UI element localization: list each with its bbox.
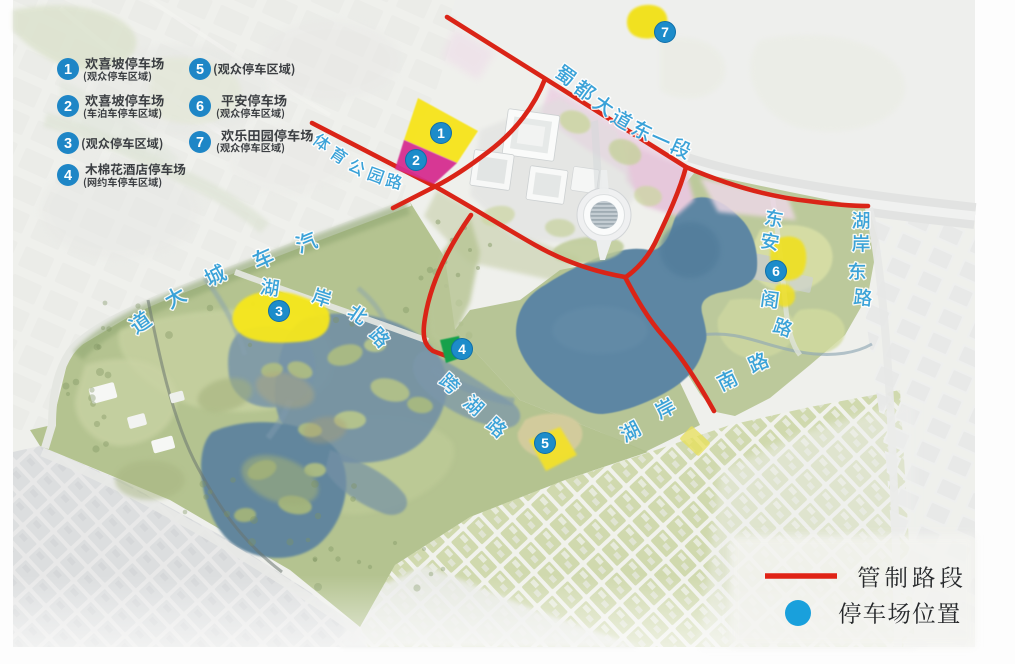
- svg-text:1: 1: [64, 62, 72, 78]
- svg-text:6: 6: [196, 99, 204, 115]
- svg-text:2: 2: [64, 99, 72, 115]
- svg-text:3: 3: [275, 303, 283, 319]
- svg-text:4: 4: [458, 341, 466, 357]
- svg-text:2: 2: [412, 152, 420, 168]
- svg-text:3: 3: [64, 136, 72, 152]
- svg-text:7: 7: [196, 135, 204, 151]
- svg-text:7: 7: [661, 24, 669, 40]
- svg-text:6: 6: [772, 263, 780, 279]
- svg-text:5: 5: [196, 62, 204, 78]
- svg-text:1: 1: [437, 125, 445, 141]
- svg-text:5: 5: [541, 435, 549, 451]
- svg-text:4: 4: [64, 168, 72, 184]
